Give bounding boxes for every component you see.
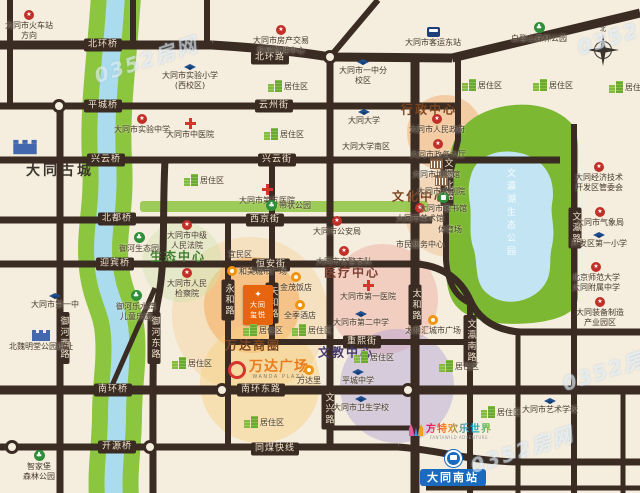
south-station-badge: 大同南站 xyxy=(420,469,486,486)
poi-label: 大同市图书馆 xyxy=(419,204,467,214)
map-poi: 和美城市广场 xyxy=(227,266,287,277)
road-label: 兴云街 xyxy=(258,154,296,167)
map-poi: 大同市实验小学(西校区) xyxy=(162,64,218,90)
poi-label: 大同市大剧院 xyxy=(417,187,465,197)
road-label: 迎宾桥 xyxy=(96,258,134,271)
poi-label: 大同市卫生学校 xyxy=(333,403,389,413)
government-badge-icon xyxy=(433,139,443,149)
poi-label: 大同市中级 xyxy=(167,231,207,241)
government-badge-icon xyxy=(432,114,442,124)
map-poi: 居住区 xyxy=(462,79,502,92)
map-poi: 大同市艺术学校 xyxy=(522,398,578,415)
map-poi: 体育场 xyxy=(438,225,462,235)
school-icon xyxy=(544,398,556,404)
poi-label: 权属管理中心 xyxy=(257,46,305,56)
commerce-icon xyxy=(227,266,237,276)
road-label: 永和路 xyxy=(222,280,235,321)
commerce-icon xyxy=(304,365,314,375)
map-poi: 居住区 xyxy=(184,174,224,187)
map-poi: 平城中学 xyxy=(342,369,374,386)
government-badge-icon xyxy=(591,262,601,272)
poi-label: 大同市火车站 xyxy=(5,21,53,31)
poi-label: 居住区 xyxy=(259,326,283,336)
poi-label: 森林公园 xyxy=(23,472,55,482)
map-poi: 大同市人民政府 xyxy=(409,114,465,135)
school-icon xyxy=(355,396,367,402)
residential-buildings-icon xyxy=(268,80,282,92)
poi-label: 居住区 xyxy=(370,353,394,363)
poi-label: 宜民区 xyxy=(228,250,252,260)
poi-label: 北京师范大学 xyxy=(572,273,620,283)
government-badge-icon xyxy=(182,268,192,278)
poi-label: 居住区 xyxy=(549,81,573,91)
residential-buildings-icon xyxy=(184,174,198,186)
poi-label: 大同市一中分 xyxy=(339,66,387,76)
map-poi: 居住区 xyxy=(172,357,212,370)
map-poi: 大同装备制造产业园区 xyxy=(576,297,624,327)
road-label: 南环东路 xyxy=(237,384,285,397)
map-poi: 大同市公安局 xyxy=(313,216,361,237)
poi-label: 金茂饭店 xyxy=(280,283,312,293)
poi-label: 大同市博物馆 xyxy=(412,170,460,180)
park-tree-icon xyxy=(134,232,145,243)
poi-label: 居住区 xyxy=(200,176,224,186)
poi-label: 儿童乐园 xyxy=(120,312,152,322)
poi-label: 大同附属中学 xyxy=(572,283,620,293)
poi-label: 居住区 xyxy=(260,418,284,428)
museum-icon xyxy=(430,158,443,169)
poi-label: 大同市第一中 xyxy=(31,300,79,310)
map-poi: 居住区 xyxy=(533,79,573,92)
school-icon xyxy=(358,109,370,115)
map-poi: 大同市卫生学校 xyxy=(333,396,389,413)
map-poi: 大同市中医院 xyxy=(166,118,214,140)
poi-label: 大同市第一医院 xyxy=(340,292,396,302)
residential-buildings-icon xyxy=(354,351,368,363)
poi-label: 御河乐水湾 xyxy=(116,302,156,312)
project-banner: ✦ 大同 玺悦 xyxy=(243,285,273,325)
map-poi: 大同市中级人民法院 xyxy=(167,220,207,250)
poi-label: 大同市气象局 xyxy=(576,218,624,228)
school-icon xyxy=(357,59,369,65)
road-label: 云州街 xyxy=(255,100,293,113)
map-poi: 居住区 xyxy=(244,416,284,429)
poi-label: 大同市房产交易 xyxy=(253,36,309,46)
poi-label: 万达里 xyxy=(297,376,321,386)
map-poi: 大同市政务大厅 xyxy=(410,139,466,160)
residential-buildings-icon xyxy=(243,324,257,336)
map-poi: 白登山森林公园 xyxy=(511,22,567,44)
map-poi: 居住区 xyxy=(243,324,283,337)
poi-label: 大同市艺术学校 xyxy=(522,405,578,415)
park-tree-icon xyxy=(131,290,142,301)
road-label: 西京街 xyxy=(246,214,284,227)
poi-label: 居住区 xyxy=(455,362,479,372)
poi-label: 大同装备制造 xyxy=(576,308,624,318)
hospital-cross-icon xyxy=(185,118,196,129)
poi-label: 白登山森林公园 xyxy=(511,34,567,44)
poi-label: 智家堡 xyxy=(27,462,51,472)
school-icon xyxy=(49,293,61,299)
commerce-icon xyxy=(428,315,438,325)
poi-label: 大同市第二中学 xyxy=(333,318,389,328)
poi-label: 居住区 xyxy=(308,326,332,336)
ancient-city-wall-icon xyxy=(13,144,36,154)
poi-label: 大同市公安局 xyxy=(313,227,361,237)
poi-label: 大同大学 xyxy=(348,116,380,126)
map-poi: 带状公园 xyxy=(266,200,311,212)
compass: 北 xyxy=(586,24,620,67)
poi-label: 居住区 xyxy=(625,83,640,93)
map-poi: 大同市博物馆 xyxy=(412,158,460,180)
wanda-ring-icon xyxy=(228,361,246,379)
commerce-icon xyxy=(291,272,301,282)
city-location-map: 文瀛湖生态公园 大同古城 ✦ 大同 玺悦 万达广场 WANDA PLAZA 方特… xyxy=(0,0,640,493)
poi-label: 大同市中医院 xyxy=(166,130,214,140)
bus-station-icon xyxy=(427,27,440,37)
residential-buildings-icon xyxy=(172,357,186,369)
map-poi: 太和汇城市广场 xyxy=(405,315,461,336)
map-poi: 御河生态园 xyxy=(119,232,159,254)
poi-label: 居住区 xyxy=(284,82,308,92)
map-poi: 居住区 xyxy=(609,81,640,94)
map-poi: 万达里 xyxy=(297,365,321,386)
map-poi: 居住区 xyxy=(481,406,521,419)
residential-buildings-icon xyxy=(462,79,476,91)
government-badge-icon xyxy=(594,162,604,172)
poi-label: 居住区 xyxy=(188,359,212,369)
road-label: 平城桥 xyxy=(84,100,122,113)
poi-label: 校区 xyxy=(355,76,371,86)
government-badge-icon xyxy=(595,207,605,217)
hospital-cross-icon xyxy=(363,280,374,291)
map-poi: 大同市客运东站 xyxy=(405,27,461,48)
park-tree-icon xyxy=(34,450,45,461)
poi-label: 开发区第一小学 xyxy=(571,239,627,249)
map-poi: 居住区 xyxy=(292,324,332,337)
poi-label: 居住区 xyxy=(478,81,502,91)
poi-label: 全季酒店 xyxy=(284,311,316,321)
map-poi: 大同市火车站方向 xyxy=(5,10,53,40)
train-station-icon xyxy=(445,450,462,467)
poi-label: 大同市美术馆 xyxy=(396,214,444,224)
map-poi: 大同市实验中学 xyxy=(114,114,170,135)
government-badge-icon xyxy=(595,297,605,307)
poi-label: 大同市交警支队 xyxy=(316,257,372,267)
park-tree-icon xyxy=(534,22,545,33)
map-poi: 御河乐水湾儿童乐园 xyxy=(116,290,156,321)
road-label: 同煤快线 xyxy=(251,443,299,456)
project-emblem-icon: ✦ xyxy=(254,291,262,300)
poi-label: 平城中学 xyxy=(342,376,374,386)
commerce-icon xyxy=(295,300,305,310)
map-poi: 全季酒店 xyxy=(284,300,316,321)
poi-label: 人民法院 xyxy=(171,241,203,251)
map-poi: 居住区 xyxy=(354,351,394,364)
park-tree-icon xyxy=(266,200,277,211)
map-poi: 大同大学南区 xyxy=(342,142,390,152)
compass-rose-icon xyxy=(586,33,620,67)
residential-buildings-icon xyxy=(533,79,547,91)
poi-label: 大同市实验小学 xyxy=(162,71,218,81)
residential-buildings-icon xyxy=(292,324,306,336)
map-poi: 大同市房产交易权属管理中心 xyxy=(253,25,309,55)
south-station-landmark: 大同南站 xyxy=(420,450,486,486)
map-poi: 大同大学 xyxy=(348,109,380,126)
project-name-line1: 大同 xyxy=(250,301,266,309)
road-label: 开源桥 xyxy=(98,441,136,454)
residential-buildings-icon xyxy=(244,416,258,428)
school-icon xyxy=(352,369,364,375)
poi-label: 大同经济技术 xyxy=(575,173,623,183)
ancient-city-label: 大同古城 xyxy=(26,160,94,180)
fantawild-name: 方特欢乐世界 xyxy=(426,420,492,435)
government-badge-icon xyxy=(137,114,147,124)
government-badge-icon xyxy=(276,25,286,35)
government-badge-icon xyxy=(332,216,342,226)
map-poi: 大同市第一医院 xyxy=(340,280,396,302)
road-label: 南环桥 xyxy=(94,384,132,397)
map-poi: 大同市交警支队 xyxy=(316,246,372,267)
poi-label: 太和汇城市广场 xyxy=(405,326,461,336)
poi-label: 居住区 xyxy=(497,408,521,418)
map-poi: 大同市气象局 xyxy=(576,207,624,228)
poi-label: 带状公园 xyxy=(279,201,311,211)
map-poi: 大同市第一中 xyxy=(31,293,79,310)
residential-buildings-icon xyxy=(439,360,453,372)
map-poi: 宜民区 xyxy=(228,250,252,260)
poi-label: 和美城市广场 xyxy=(239,267,287,277)
map-poi: 居住区 xyxy=(268,80,308,93)
poi-label: 大同市人民 xyxy=(167,279,207,289)
poi-label: 北魏明堂公园遗址 xyxy=(9,342,73,352)
poi-label: 御河生态园 xyxy=(119,244,159,254)
map-poi: 市民服务中心 xyxy=(396,240,444,250)
road-label: 北环桥 xyxy=(84,39,122,52)
map-poi: 居住区 xyxy=(264,128,304,141)
poi-label: 开发区管委会 xyxy=(575,183,623,193)
school-icon xyxy=(184,64,196,70)
poi-label: 大同市客运东站 xyxy=(405,38,461,48)
hospital-cross-icon xyxy=(262,184,273,195)
fantawild-latin: FANTAWILD ADVENTURE xyxy=(430,435,488,440)
residential-buildings-icon xyxy=(481,406,495,418)
poi-label: 大同大学南区 xyxy=(342,142,390,152)
heritage-icon xyxy=(32,333,50,341)
poi-label: 居住区 xyxy=(280,130,304,140)
poi-label: 市民服务中心 xyxy=(396,240,444,250)
map-poi: 大同市一中分校区 xyxy=(339,59,387,85)
map-poi: 开发区第一小学 xyxy=(571,232,627,249)
map-poi: 大同市第二中学 xyxy=(333,311,389,328)
castle-icon xyxy=(408,424,424,436)
poi-label: 大同市人民政府 xyxy=(409,125,465,135)
fantawild-landmark: 方特欢乐世界 FANTAWILD ADVENTURE xyxy=(408,420,492,440)
compass-north-label: 北 xyxy=(600,24,606,33)
poi-label: (西校区) xyxy=(175,81,205,91)
map-poi: 大同经济技术开发区管委会 xyxy=(575,162,623,192)
map-poi: 大同市人民检察院 xyxy=(167,268,207,298)
residential-buildings-icon xyxy=(264,128,278,140)
poi-label: 方向 xyxy=(21,31,37,41)
poi-label: 产业园区 xyxy=(584,318,616,328)
residential-buildings-icon xyxy=(609,81,623,93)
map-poi: 智家堡森林公园 xyxy=(23,450,55,481)
government-badge-icon xyxy=(182,220,192,230)
poi-label: 检察院 xyxy=(175,289,199,299)
lake-label: 文瀛湖生态公园 xyxy=(504,168,517,259)
project-name-line2: 玺悦 xyxy=(250,311,266,319)
poi-label: 大同市实验中学 xyxy=(114,125,170,135)
map-poi: 北魏明堂公园遗址 xyxy=(9,330,73,352)
school-icon xyxy=(355,311,367,317)
government-badge-icon xyxy=(339,246,349,256)
school-icon xyxy=(593,232,605,238)
poi-label: 体育场 xyxy=(438,225,462,235)
government-badge-icon xyxy=(24,10,34,20)
road-label: 北都桥 xyxy=(98,213,136,226)
map-poi: 北京师范大学大同附属中学 xyxy=(572,262,620,292)
zone-title: 万达商圈 xyxy=(225,337,281,354)
map-poi: 居住区 xyxy=(439,360,479,373)
